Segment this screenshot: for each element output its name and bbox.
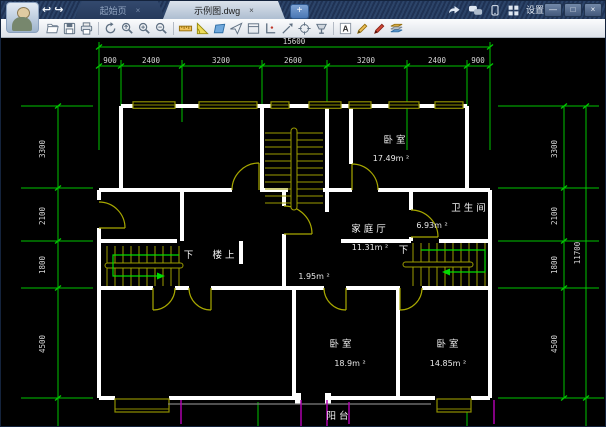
- fullscreen-icon[interactable]: [507, 4, 520, 17]
- zoom-realtime-button[interactable]: [119, 20, 136, 37]
- center-mark-icon: [297, 21, 312, 36]
- bucket-icon: [314, 21, 329, 36]
- text-box-icon: A: [338, 21, 353, 36]
- extension-lines: [21, 42, 604, 427]
- view-orbit-button[interactable]: [102, 20, 119, 37]
- zoom-in-icon: [137, 21, 152, 36]
- tab-label: 示例图.dwg: [194, 4, 240, 17]
- tab-start-page[interactable]: 起始页 ×: [75, 1, 165, 19]
- tab-drawing[interactable]: 示例图.dwg ×: [163, 1, 285, 19]
- drawing-area: 15600 900 2400 3200 2600 3200 2400 900 3…: [1, 38, 606, 427]
- balcony-label: 阳台: [326, 410, 351, 422]
- room-area-bedroom-right: 14.85m ²: [430, 359, 466, 368]
- open-folder-icon: [45, 21, 60, 36]
- feedback-icon[interactable]: [468, 3, 483, 18]
- coordinate-button[interactable]: [262, 20, 279, 37]
- pencil-button[interactable]: [354, 20, 371, 37]
- dim-top: 2600: [284, 56, 303, 65]
- room-label-bedroom-right: 卧室: [436, 338, 461, 350]
- share-icon[interactable]: [447, 3, 462, 18]
- dart-icon: [229, 21, 244, 36]
- pencil-icon: [355, 21, 370, 36]
- door-jamb: [325, 393, 331, 404]
- stair-down-right-label: 下: [399, 245, 412, 256]
- red-pen-button[interactable]: [371, 20, 388, 37]
- room-area-bedroom-top: 17.49m ²: [373, 154, 409, 163]
- coordinate-icon: [263, 21, 278, 36]
- room-label-bedroom-top: 卧室: [383, 134, 408, 146]
- bay-window: [437, 399, 471, 412]
- forward-arrow-icon[interactable]: ↪: [54, 2, 63, 18]
- dim-right: 4500: [550, 334, 559, 353]
- dim-left: 2100: [38, 206, 47, 225]
- dimension-lines: [21, 42, 604, 427]
- dim-total-top: 15600: [283, 38, 306, 46]
- tab-close-icon[interactable]: ×: [249, 6, 254, 15]
- layers-icon: [389, 21, 404, 36]
- zoom-out-button[interactable]: [153, 20, 170, 37]
- mobile-icon[interactable]: [489, 3, 501, 18]
- print-icon: [79, 21, 94, 36]
- tab-close-icon[interactable]: ×: [136, 6, 141, 15]
- viewport-button[interactable]: [245, 20, 262, 37]
- dim-right: 2100: [550, 206, 559, 225]
- print-button[interactable]: [78, 20, 95, 37]
- dim-left: 1800: [38, 255, 47, 274]
- text-button[interactable]: A: [337, 20, 354, 37]
- angle-ruler-icon: [195, 21, 210, 36]
- user-avatar[interactable]: [6, 2, 39, 33]
- maximize-button[interactable]: □: [564, 3, 582, 17]
- zoom-out-icon: [154, 21, 169, 36]
- leader-arrow-icon: [280, 21, 295, 36]
- open-button[interactable]: [44, 20, 61, 37]
- area-polygon-icon: [212, 21, 227, 36]
- avatar-body: [12, 17, 32, 31]
- cleanup-button[interactable]: [313, 20, 330, 37]
- dim-total-right: 11700: [573, 241, 582, 264]
- settings-button[interactable]: 设置: [526, 4, 544, 17]
- dim-top: 900: [103, 56, 117, 65]
- toolbar-separator: [98, 22, 99, 35]
- stair-down-left-label: 下: [184, 250, 197, 261]
- close-button[interactable]: ×: [584, 3, 602, 17]
- measure-entity-button[interactable]: [228, 20, 245, 37]
- red-pen-icon: [372, 21, 387, 36]
- toolbar-separator: [173, 22, 174, 35]
- back-arrow-icon[interactable]: ↩: [42, 2, 51, 18]
- save-icon: [62, 21, 77, 36]
- room-area-bedroom-left: 18.9m ²: [334, 359, 365, 368]
- dim-top: 2400: [142, 56, 161, 65]
- dim-left: 3300: [38, 139, 47, 158]
- dim-right: 1800: [550, 255, 559, 274]
- measure-distance-button[interactable]: [177, 20, 194, 37]
- measure-area-button[interactable]: [211, 20, 228, 37]
- drawing-canvas[interactable]: 15600 900 2400 3200 2600 3200 2400 900 3…: [1, 38, 606, 427]
- door-jamb: [295, 393, 301, 404]
- toolbar: A: [1, 19, 605, 38]
- dim-left: 4500: [38, 334, 47, 353]
- tab-label: 起始页: [100, 4, 127, 17]
- dim-top: 3200: [212, 56, 231, 65]
- save-button[interactable]: [61, 20, 78, 37]
- titlebar: ↩ ↪ 起始页 × 示例图.dwg × +: [1, 1, 605, 19]
- center-mark-button[interactable]: [296, 20, 313, 37]
- dim-top: 2400: [428, 56, 447, 65]
- leader-button[interactable]: [279, 20, 296, 37]
- orbit-icon: [103, 21, 118, 36]
- room-labels: 卧室 17.49m ² 家庭厅 11.31m ² 卫生间 6.93m ² 1.9…: [184, 134, 489, 422]
- ruler-icon: [178, 21, 193, 36]
- minimize-button[interactable]: —: [544, 3, 562, 17]
- new-tab-button[interactable]: +: [290, 4, 309, 19]
- room-label-bathroom: 卫生间: [451, 202, 489, 214]
- room-area-bathroom: 6.93m ²: [416, 221, 447, 230]
- room-label-family-hall: 家庭厅: [351, 223, 389, 235]
- hall-area-label: 1.95m ²: [298, 272, 329, 281]
- room-area-family-hall: 11.31m ²: [352, 243, 388, 252]
- text-glyph: A: [342, 23, 348, 33]
- zoom-realtime-icon: [120, 21, 135, 36]
- toolbar-separator: [333, 22, 334, 35]
- stairs: [105, 128, 485, 286]
- room-label-bedroom-left: 卧室: [329, 338, 354, 350]
- dim-top: 900: [471, 56, 485, 65]
- dim-top: 3200: [357, 56, 376, 65]
- cad-viewer-window: ↩ ↪ 起始页 × 示例图.dwg × +: [0, 0, 606, 427]
- dim-right: 3300: [550, 139, 559, 158]
- stair-up-label: 楼上: [212, 249, 237, 261]
- frame-icon: [246, 21, 261, 36]
- layers-button[interactable]: [388, 20, 405, 37]
- measure-angle-button[interactable]: [194, 20, 211, 37]
- bay-window: [115, 399, 169, 412]
- zoom-in-button[interactable]: [136, 20, 153, 37]
